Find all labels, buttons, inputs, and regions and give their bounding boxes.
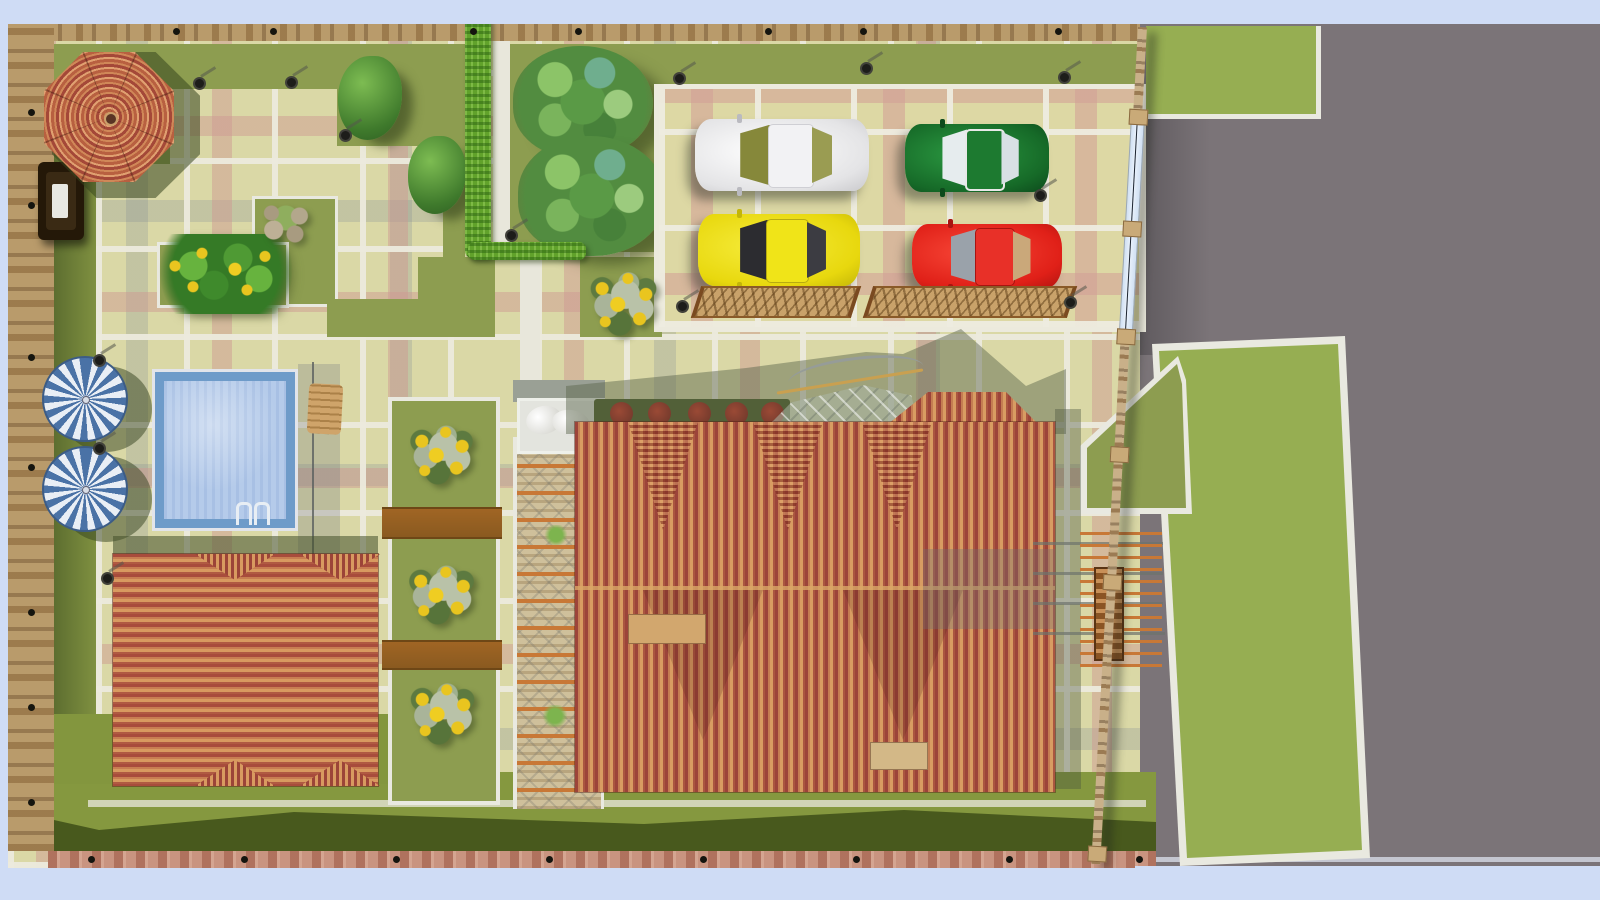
lamp-post-9 [93, 354, 106, 367]
hedge-horizontal [468, 242, 586, 260]
wall-post-dot [28, 464, 35, 471]
deck-hip-top-2 [300, 554, 380, 580]
bridge-2 [382, 640, 502, 670]
lamp-post-8 [1034, 189, 1047, 202]
tree-2 [518, 136, 666, 256]
niche-basin [52, 184, 68, 218]
wall-post-dot [853, 856, 860, 863]
sunflower-cluster-1 [406, 422, 478, 486]
roof-chimney-1 [628, 614, 706, 644]
roof-chimney-2 [870, 742, 928, 770]
lamp-post-6 [860, 62, 873, 75]
fence-post-6 [1087, 845, 1107, 862]
path-north [493, 39, 510, 254]
house-roof [575, 422, 1055, 792]
car-green-rear-glass [1001, 131, 1018, 184]
lamp-post-10 [93, 442, 106, 455]
sunflower-cluster-3 [406, 679, 480, 747]
rock-garden [258, 196, 314, 246]
deck-hip-bottom-2 [300, 760, 380, 786]
fence-post-1 [1129, 109, 1149, 126]
car-white [695, 119, 869, 191]
fence-post-3 [1116, 328, 1136, 345]
wall-post-dot [28, 704, 35, 711]
wall-post-dot [1055, 28, 1062, 35]
flower-bed-plants [148, 234, 298, 314]
car-yellow-roof [766, 219, 809, 283]
lamp-post-7 [1058, 71, 1071, 84]
umbrella-2 [42, 446, 128, 532]
wall-post-dot [28, 109, 35, 116]
car-red-mirror-left [948, 219, 953, 228]
verge-lawn-north [1146, 26, 1321, 119]
roof-cloud-shade [923, 549, 1055, 629]
deck-hip-top-1 [195, 554, 275, 580]
sky-bottom-right [1135, 866, 1600, 900]
roof-valley-3 [862, 422, 932, 530]
lounger-poolside [307, 383, 344, 435]
hedge-vertical [465, 8, 491, 258]
wall-post-dot [700, 856, 707, 863]
wall-post-dot [28, 799, 35, 806]
wall-post-dot [28, 202, 35, 209]
wall-post-dot [88, 856, 95, 863]
wall-post-dot [393, 856, 400, 863]
lamp-post-11 [101, 572, 114, 585]
wall-post-dot [546, 856, 553, 863]
car-white-roof [768, 124, 814, 188]
wall-post-dot [765, 28, 772, 35]
umbrella-1 [42, 356, 128, 442]
pool-ladder-2 [254, 502, 270, 525]
deck-building [113, 554, 378, 786]
car-green-roof [965, 129, 1005, 191]
car-white-windshield [740, 125, 770, 185]
sunflower-cluster-2 [404, 562, 480, 626]
sky-bottom [0, 868, 1140, 900]
deck-hip-bottom-1 [195, 760, 275, 786]
car-red-windshield [951, 229, 977, 283]
sunflower-cluster-4 [585, 267, 663, 339]
site [8, 24, 1140, 868]
fence-post-4 [1110, 446, 1130, 463]
wall-south [48, 851, 1156, 868]
wall-post-dot [28, 609, 35, 616]
car-yellow [698, 214, 860, 286]
car-yellow-rear-glass [807, 222, 826, 278]
lamp-post-3 [339, 129, 352, 142]
fence-post-5 [1103, 574, 1123, 591]
swimming-pool [155, 372, 295, 528]
lawn-mid-arm [327, 257, 495, 337]
wall-post-dot [1006, 856, 1013, 863]
trellis-screen-2 [863, 286, 1077, 318]
wall-west [8, 24, 54, 851]
pool-ladder-1 [236, 502, 252, 525]
pergola-grass-2 [541, 705, 569, 727]
wall-post-dot [173, 28, 180, 35]
bridge-1 [382, 507, 502, 539]
car-green-mirror-right [940, 188, 945, 197]
wall-post-dot [470, 28, 477, 35]
sky-top [0, 0, 1600, 24]
pergola-grass-1 [543, 525, 569, 545]
car-yellow-windshield [740, 220, 768, 280]
lamp-post-5 [673, 72, 686, 85]
car-white-rear-glass [812, 127, 833, 183]
roof-valley-2 [753, 422, 823, 530]
wall-post-dot [575, 28, 582, 35]
wall-post-dot [241, 856, 248, 863]
car-green-windshield [942, 129, 966, 186]
car-red [912, 224, 1062, 288]
car-red-roof [975, 228, 1015, 285]
lamp-post-12 [676, 300, 689, 313]
car-red-deck [1013, 231, 1031, 281]
fence-post-2 [1122, 220, 1142, 237]
house-shadow-east [1055, 409, 1081, 789]
wall-post-dot [270, 28, 277, 35]
car-yellow-mirror-left [737, 209, 742, 218]
car-green [905, 124, 1049, 192]
roof-hip-south-1 [643, 590, 763, 740]
car-white-mirror-left [737, 114, 742, 123]
car-green-mirror-left [940, 119, 945, 128]
render-viewport [0, 0, 1600, 900]
gazebo [44, 52, 174, 182]
lamp-post-2 [285, 76, 298, 89]
lamp-post-4 [505, 229, 518, 242]
roof-valley-1 [628, 422, 698, 530]
car-white-mirror-right [737, 187, 742, 196]
wall-post-dot [28, 354, 35, 361]
sky-left [0, 0, 8, 900]
wall-post-dot [860, 28, 867, 35]
path-south [88, 800, 1146, 807]
road-shadow [1140, 95, 1210, 355]
lamp-post-1 [193, 77, 206, 90]
wall-post-dot [1136, 856, 1143, 863]
lamp-post-13 [1064, 296, 1077, 309]
trellis-screen-1 [691, 286, 861, 318]
